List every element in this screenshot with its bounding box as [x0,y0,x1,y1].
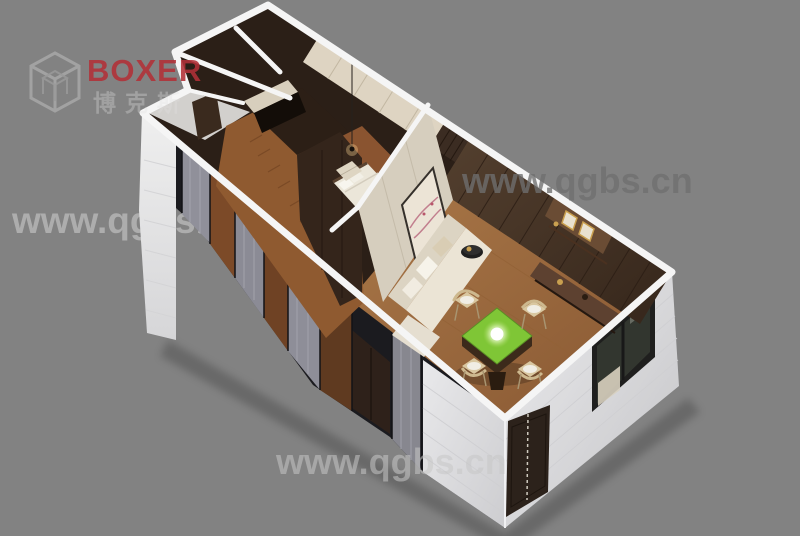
exterior-door [506,405,550,517]
render-canvas: www.qgbs.cn [0,0,800,536]
cube-logo-icon [28,50,84,122]
facade-nw [139,112,176,340]
brand-subtext: 博克斯 [93,84,189,118]
watermark-bottom: www.qgbs.cn [276,441,507,483]
brand-logo: BOXER 博克斯 [0,0,240,140]
watermark-top-right: www.qgbs.cn [462,160,693,202]
